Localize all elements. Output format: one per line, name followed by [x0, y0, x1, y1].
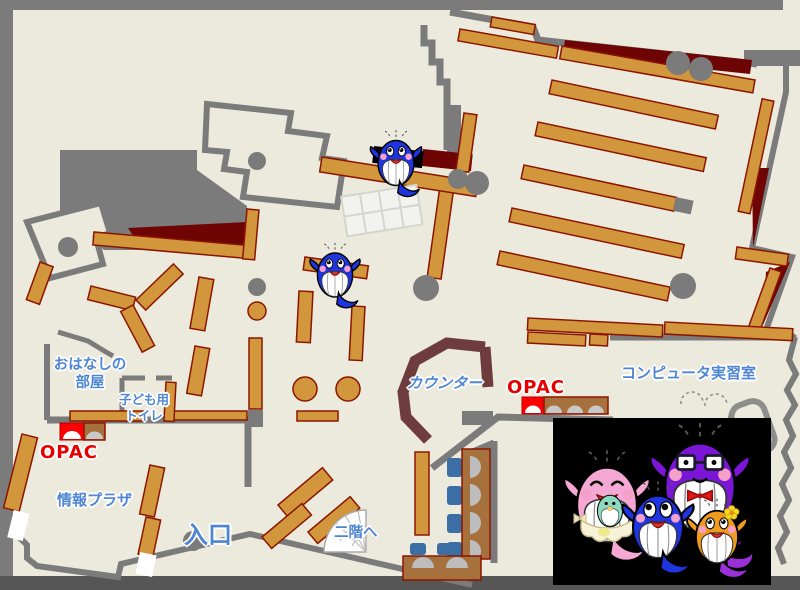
opac-terminal-right — [522, 397, 608, 414]
label-kids-toilet: 子ども用 トイレ — [116, 392, 172, 423]
label-computer-room: コンピュータ実習室 — [621, 364, 756, 383]
label-entrance: 入口 — [184, 520, 232, 550]
label-info-plaza: 情報プラザ — [57, 491, 132, 510]
kids-toilet-line1: 子ども用 — [119, 392, 169, 407]
mascot-panel — [553, 418, 771, 585]
kids-toilet-line2: トイレ — [125, 408, 163, 423]
label-opac-right: OPAC — [507, 377, 565, 400]
opac-terminal-left — [60, 423, 105, 440]
label-opac-left: OPAC — [40, 442, 98, 465]
label-storytelling-room: おはなしの 部屋 — [50, 356, 130, 392]
storytelling-room-line2: 部屋 — [76, 375, 105, 391]
label-counter: カウンター — [406, 374, 483, 393]
library-floor-map: おはなしの 部屋 子ども用 トイレ OPAC 情報プラザ 入口 二階へ カウンタ… — [0, 0, 800, 590]
label-to-second-floor: 二階へ — [334, 524, 378, 542]
storytelling-room-line1: おはなしの — [54, 357, 127, 373]
